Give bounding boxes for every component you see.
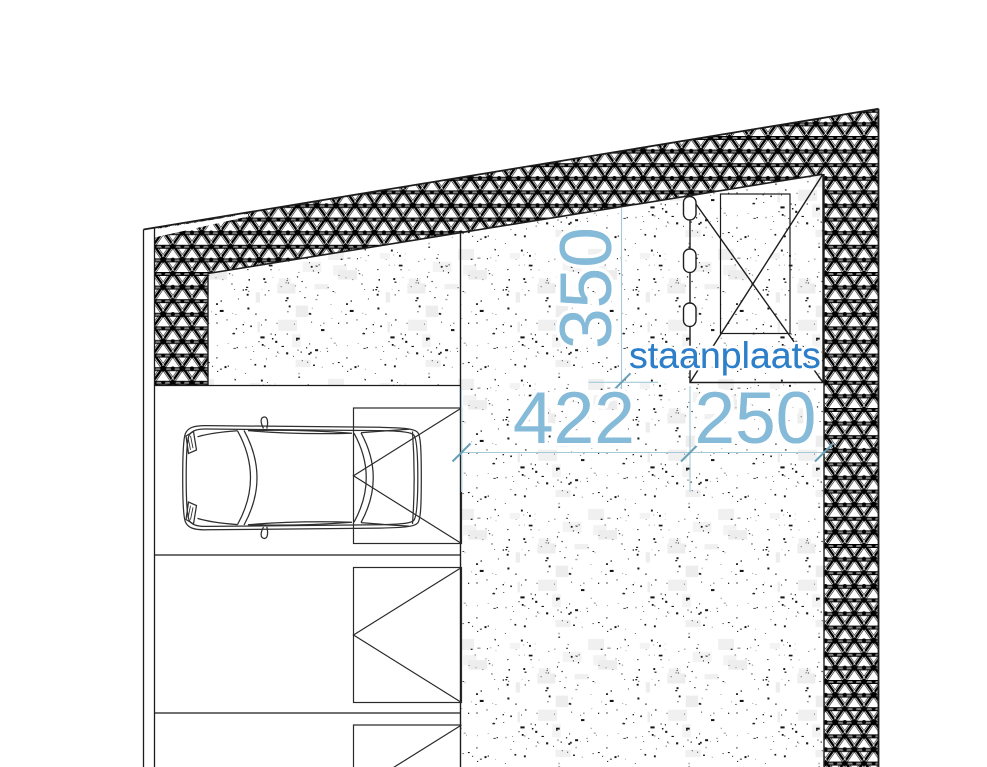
- svg-text:staanplaats: staanplaats: [629, 334, 821, 376]
- svg-text:250: 250: [695, 378, 817, 459]
- svg-text:422: 422: [513, 378, 635, 459]
- svg-text:350: 350: [546, 227, 627, 349]
